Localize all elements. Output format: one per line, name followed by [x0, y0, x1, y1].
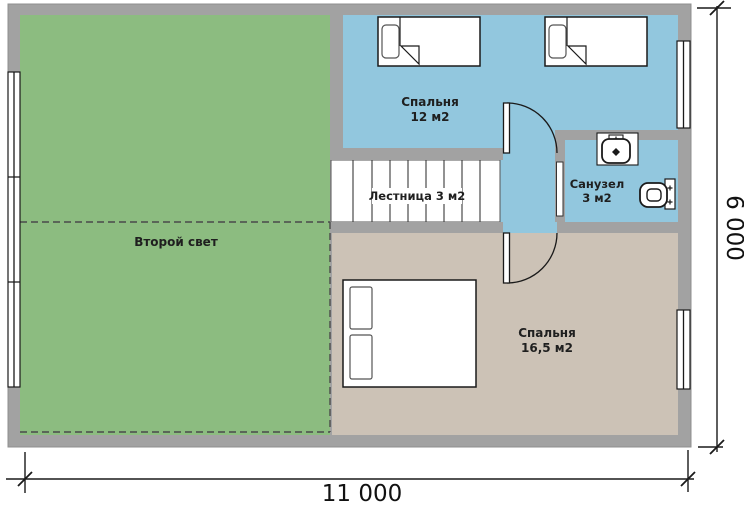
window-icon-right-top: [677, 41, 690, 128]
window-icon-left: [8, 72, 20, 387]
door-leaf: [504, 103, 510, 153]
toilet-seat: [647, 189, 661, 201]
toilet-icon: [640, 179, 675, 209]
wall-bedroom12-south: [330, 148, 503, 160]
hall-landing: [500, 148, 557, 233]
label-second-light: Второй свет: [134, 235, 218, 249]
door-icon-bathroom: [557, 162, 564, 216]
sink-icon: [597, 133, 638, 165]
wall-green-bedroom12: [330, 15, 343, 160]
door-leaf: [557, 162, 564, 216]
double-bed-icon: [343, 280, 476, 387]
pillow: [549, 25, 566, 58]
label-staircase: Лестница 3 м2: [369, 189, 466, 203]
door-leaf: [504, 233, 510, 283]
floor-plan-page: Второй свет Спальня 12 м2 Лестница 3 м2 …: [0, 0, 744, 505]
pillow: [382, 25, 399, 58]
pillow: [350, 287, 372, 329]
label-bedroom-12-area: 12 м2: [410, 110, 449, 124]
label-bathroom-area: 3 м2: [582, 191, 611, 205]
single-bed-icon-1: [378, 17, 480, 66]
window-icon-right-bottom: [677, 310, 690, 389]
wall-bedroom16-north-left: [330, 222, 503, 233]
floor-plan-drawing: Второй свет Спальня 12 м2 Лестница 3 м2 …: [0, 0, 744, 505]
label-bedroom-12: Спальня: [401, 95, 459, 109]
width-dimension-value: 11 000: [322, 481, 402, 505]
pillow: [350, 335, 372, 379]
label-bedroom-16-area: 16,5 м2: [521, 341, 573, 355]
height-dimension-value: 6 000: [721, 195, 744, 261]
single-bed-icon-2: [545, 17, 647, 66]
label-bedroom-16: Спальня: [518, 326, 576, 340]
label-bathroom: Санузел: [570, 177, 625, 191]
room-second-light: [20, 15, 330, 435]
wall-bedroom16-north-right: [557, 222, 678, 233]
